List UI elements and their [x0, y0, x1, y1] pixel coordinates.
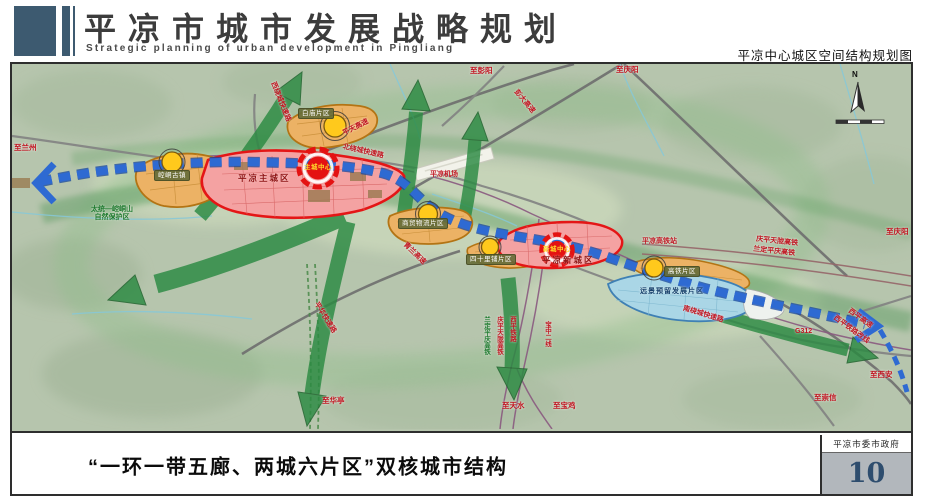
label-vertical-ldpq-hsr: 兰定平庆高铁 [482, 316, 489, 355]
zone-label-new-city: 平凉新城区 [542, 256, 595, 266]
node-gaotie [642, 256, 666, 280]
title-block-thin-bar [73, 6, 75, 56]
title-block-bar [62, 6, 70, 56]
zone-label-gaotie: 高铁片区 [664, 266, 700, 277]
compass-n-label: N [852, 70, 858, 79]
title-block-square [14, 6, 56, 56]
dest-lanzhou: 至兰州 [14, 144, 37, 153]
dest-baoji: 至宝鸡 [553, 402, 576, 411]
dest-qingyang-top: 至庆阳 [616, 66, 639, 75]
nature-reserve-label: 太统—崆峒山 自然保护区 [64, 206, 160, 222]
page: 平凉市城市发展战略规划 Strategic planning of urban … [0, 0, 925, 500]
planning-map: N 至兰州 至彭阳 至庆阳 至庆阳 至西安 至崇信 至天水 至宝鸡 至华亭 平天… [12, 64, 911, 433]
label-new-city-center: 新城中心 [543, 246, 571, 253]
zone-label-sishilipu: 四十里铺片区 [466, 254, 516, 265]
zone-label-reserve: 远景预留发展片区 [640, 288, 704, 296]
page-number: 10 [822, 453, 911, 494]
label-hsr-station: 平凉高铁站 [642, 238, 677, 246]
zone-label-baimiao: 白庙片区 [298, 108, 334, 119]
map-caption: “一环一带五廊、两城六片区”双核城市结构 [88, 450, 508, 479]
dest-pengyang: 至彭阳 [470, 67, 493, 76]
label-baozhong-line: 宝中二线 [543, 321, 550, 347]
dest-qingyang-right: 至庆阳 [886, 228, 909, 237]
map-canvas [12, 64, 911, 429]
zone-label-shangmao: 商贸物流片区 [398, 218, 448, 229]
page-number-box: 平凉市委市政府 10 [820, 435, 911, 494]
page-subtitle-en: Strategic planning of urban development … [86, 43, 454, 54]
zone-label-kongtong: 崆峒古镇 [154, 170, 190, 181]
label-airport: 平凉机场 [430, 171, 458, 179]
content-frame: N 至兰州 至彭阳 至庆阳 至庆阳 至西安 至崇信 至天水 至宝鸡 至华亭 平天… [10, 62, 913, 496]
label-vertical-xiping-rail: 西平铁路 [508, 316, 515, 342]
nature-reserve-line2: 自然保护区 [64, 214, 160, 222]
dest-chongxin: 至崇信 [814, 394, 837, 403]
dest-xian: 至西安 [870, 371, 893, 380]
zone-label-main-city: 平凉主城区 [238, 174, 291, 184]
label-vertical-qptl-hsr: 庆平天陇高铁 [495, 316, 502, 355]
footer: “一环一带五廊、两城六片区”双核城市结构 平凉市委市政府 10 [12, 435, 911, 494]
nature-reserve-line1: 太统—崆峒山 [64, 206, 160, 214]
dest-tianshui: 至天水 [502, 402, 525, 411]
dest-huating: 至华亭 [322, 397, 345, 406]
agency-label: 平凉市委市政府 [822, 435, 911, 453]
label-g312: G312 [795, 328, 812, 336]
label-main-city-center: 主城中心 [304, 164, 332, 171]
